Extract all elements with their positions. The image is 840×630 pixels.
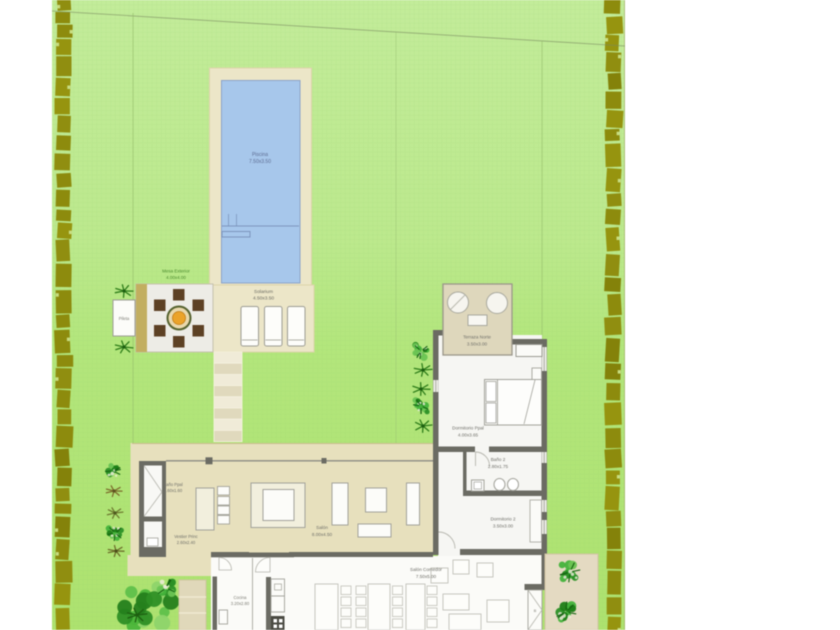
svg-text:Mesa Exterior: Mesa Exterior <box>162 269 190 274</box>
svg-text:7.50x5.00: 7.50x5.00 <box>416 574 437 579</box>
svg-text:4.00x3.65: 4.00x3.65 <box>458 433 479 438</box>
svg-text:3.50x3.00: 3.50x3.00 <box>467 342 488 347</box>
svg-text:2.60x1.60: 2.60x1.60 <box>164 488 183 493</box>
svg-text:4.50x3.50: 4.50x3.50 <box>253 296 274 302</box>
svg-text:2.80x1.75: 2.80x1.75 <box>488 464 509 469</box>
svg-text:Dormitorio Ppal: Dormitorio Ppal <box>452 426 484 431</box>
svg-text:8.00x4.50: 8.00x4.50 <box>312 532 333 537</box>
svg-text:3.50x3.00: 3.50x3.00 <box>493 524 514 529</box>
svg-text:Dormitorio 2: Dormitorio 2 <box>490 517 515 522</box>
svg-text:7.50x3.50: 7.50x3.50 <box>249 159 271 165</box>
svg-text:3.20x2.80: 3.20x2.80 <box>231 601 250 606</box>
svg-text:Baño Ppal: Baño Ppal <box>163 482 182 487</box>
svg-text:Vestier Princ: Vestier Princ <box>174 534 198 539</box>
svg-text:Salón Comedor: Salón Comedor <box>410 567 442 572</box>
svg-text:Baño 2: Baño 2 <box>491 457 506 462</box>
svg-text:Terraza Norte: Terraza Norte <box>463 335 491 340</box>
svg-text:Salón: Salón <box>316 525 328 530</box>
svg-text:Piscina: Piscina <box>252 152 268 158</box>
svg-text:Cocina: Cocina <box>233 595 247 600</box>
svg-text:B: B <box>534 609 537 613</box>
svg-text:Pileta: Pileta <box>119 316 130 321</box>
svg-text:4.00x4.00: 4.00x4.00 <box>166 275 186 280</box>
svg-text:2.60x2.40: 2.60x2.40 <box>177 540 196 545</box>
svg-text:Solarium: Solarium <box>254 289 273 295</box>
